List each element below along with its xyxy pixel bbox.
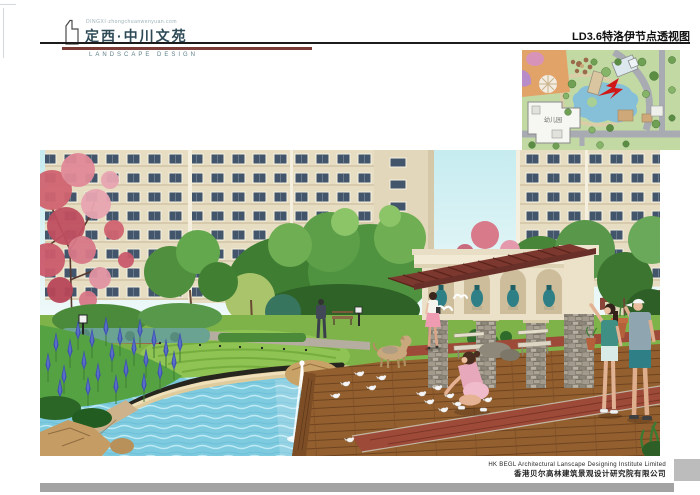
plan-plaza: [522, 50, 570, 97]
plan-kindergarten-label: 幼儿园: [544, 116, 562, 124]
plan-pond-island: [587, 97, 597, 107]
site-plan-thumbnail: 幼儿园: [522, 50, 680, 150]
logo-tagline: DINGXI·zhongchuanwenyuan.com: [86, 19, 177, 25]
company-name-cn: 香港贝尔高林建筑景观设计研究院有限公司: [488, 469, 666, 479]
footer-corner-block: [674, 459, 700, 481]
company-credit: HK BEGL Architectural Lanscape Designing…: [488, 461, 666, 479]
footer-bar: [40, 483, 674, 492]
company-name-en: HK BEGL Architectural Lanscape Designing…: [488, 461, 666, 469]
page-edge-mark: [3, 8, 4, 58]
presentation-board: DINGXI·zhongchuanwenyuan.com 定西·中川文苑 LAN…: [0, 0, 700, 495]
logo-subtitle: LANDSCAPE DESIGN: [89, 52, 198, 58]
sheet-title: LD3.6特洛伊节点透视图: [572, 28, 690, 44]
perspective-rendering: [40, 150, 660, 456]
logo-accent-rule: [62, 47, 312, 50]
page-edge-mark: [0, 4, 16, 5]
